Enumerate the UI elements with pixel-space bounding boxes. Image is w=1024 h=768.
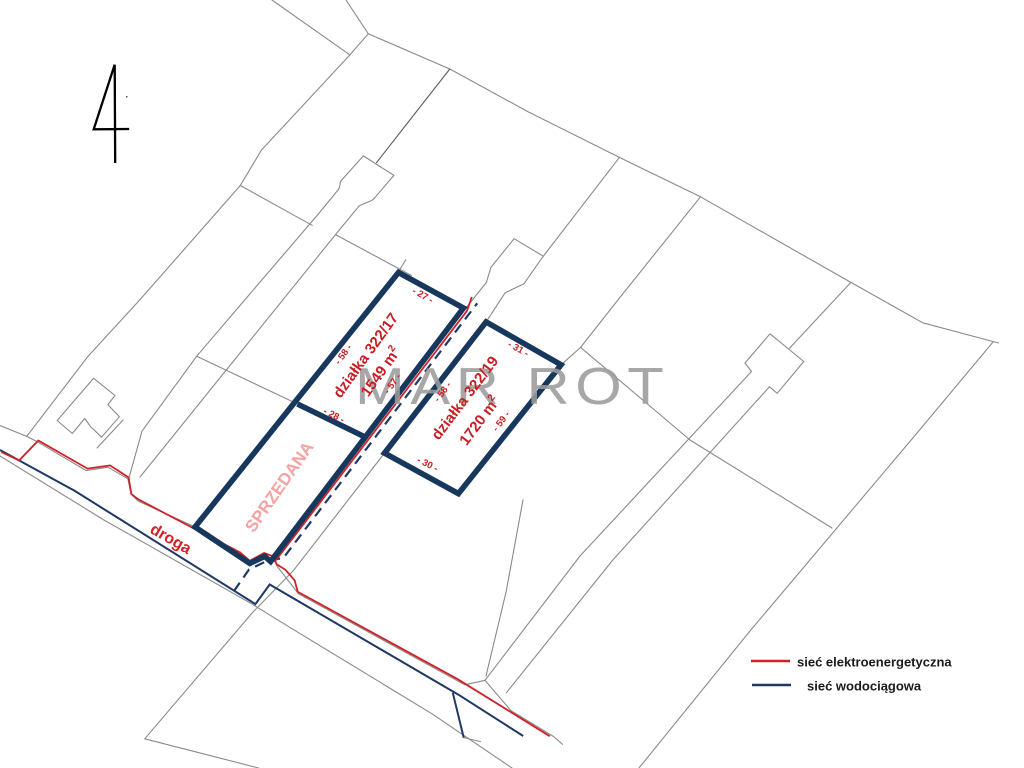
svg-text:sieć wodociągowa: sieć wodociągowa — [807, 679, 922, 694]
svg-text:sieć elektroenergetyczna: sieć elektroenergetyczna — [797, 655, 952, 670]
svg-text:MAR ROT: MAR ROT — [355, 357, 669, 415]
